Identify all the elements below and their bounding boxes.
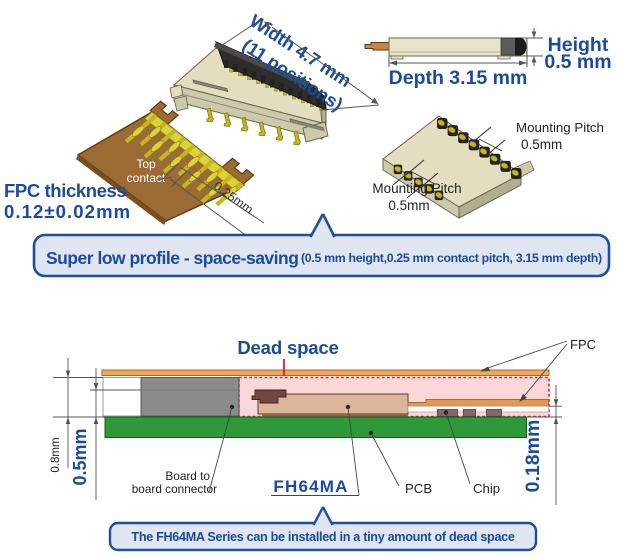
svg-text:0.5 mm: 0.5 mm	[544, 51, 611, 73]
svg-text:0.18mm: 0.18mm	[522, 420, 544, 493]
svg-text:FPC: FPC	[570, 337, 596, 352]
svg-text:contact: contact	[127, 171, 166, 185]
svg-text:Top: Top	[136, 157, 156, 171]
svg-text:0.5mm: 0.5mm	[521, 137, 562, 152]
svg-text:FPC thickness: FPC thickness	[4, 180, 126, 201]
svg-text:Depth 3.15 mm: Depth 3.15 mm	[389, 67, 528, 89]
svg-text:0.5mm: 0.5mm	[70, 428, 90, 485]
svg-text:FH64MA: FH64MA	[273, 477, 348, 496]
svg-text:Chip: Chip	[473, 481, 500, 496]
svg-text:PCB: PCB	[405, 481, 432, 496]
svg-text:Mounting Pitch: Mounting Pitch	[372, 181, 461, 196]
svg-text:(0.5 mm height,0.25 mm contact: (0.5 mm height,0.25 mm contact pitch, 3.…	[301, 251, 602, 265]
svg-text:The FH64MA Series can be insta: The FH64MA Series can be installed in a …	[131, 530, 514, 544]
svg-text:Board to: Board to	[165, 469, 210, 483]
svg-text:board connector: board connector	[132, 482, 217, 496]
svg-text:0.12±0.02mm: 0.12±0.02mm	[4, 201, 131, 222]
svg-text:Dead space: Dead space	[237, 337, 338, 358]
svg-text:Super low profile - space-savi: Super low profile - space-saving	[46, 248, 298, 268]
svg-text:Mounting Pitch: Mounting Pitch	[516, 120, 604, 135]
svg-text:0.5mm: 0.5mm	[388, 198, 429, 213]
svg-text:0.8mm: 0.8mm	[50, 437, 62, 472]
